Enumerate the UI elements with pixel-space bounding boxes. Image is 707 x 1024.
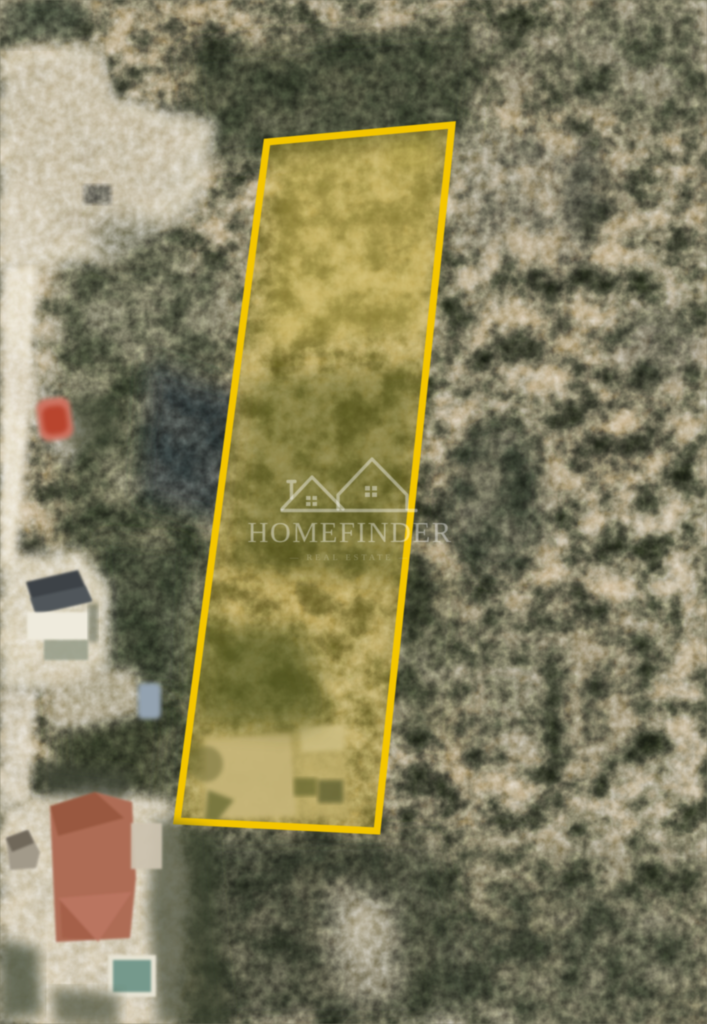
- svg-text:HOMEFINDER: HOMEFINDER: [247, 517, 452, 549]
- svg-text:— REAL ESTATE —: — REAL ESTATE —: [289, 552, 410, 562]
